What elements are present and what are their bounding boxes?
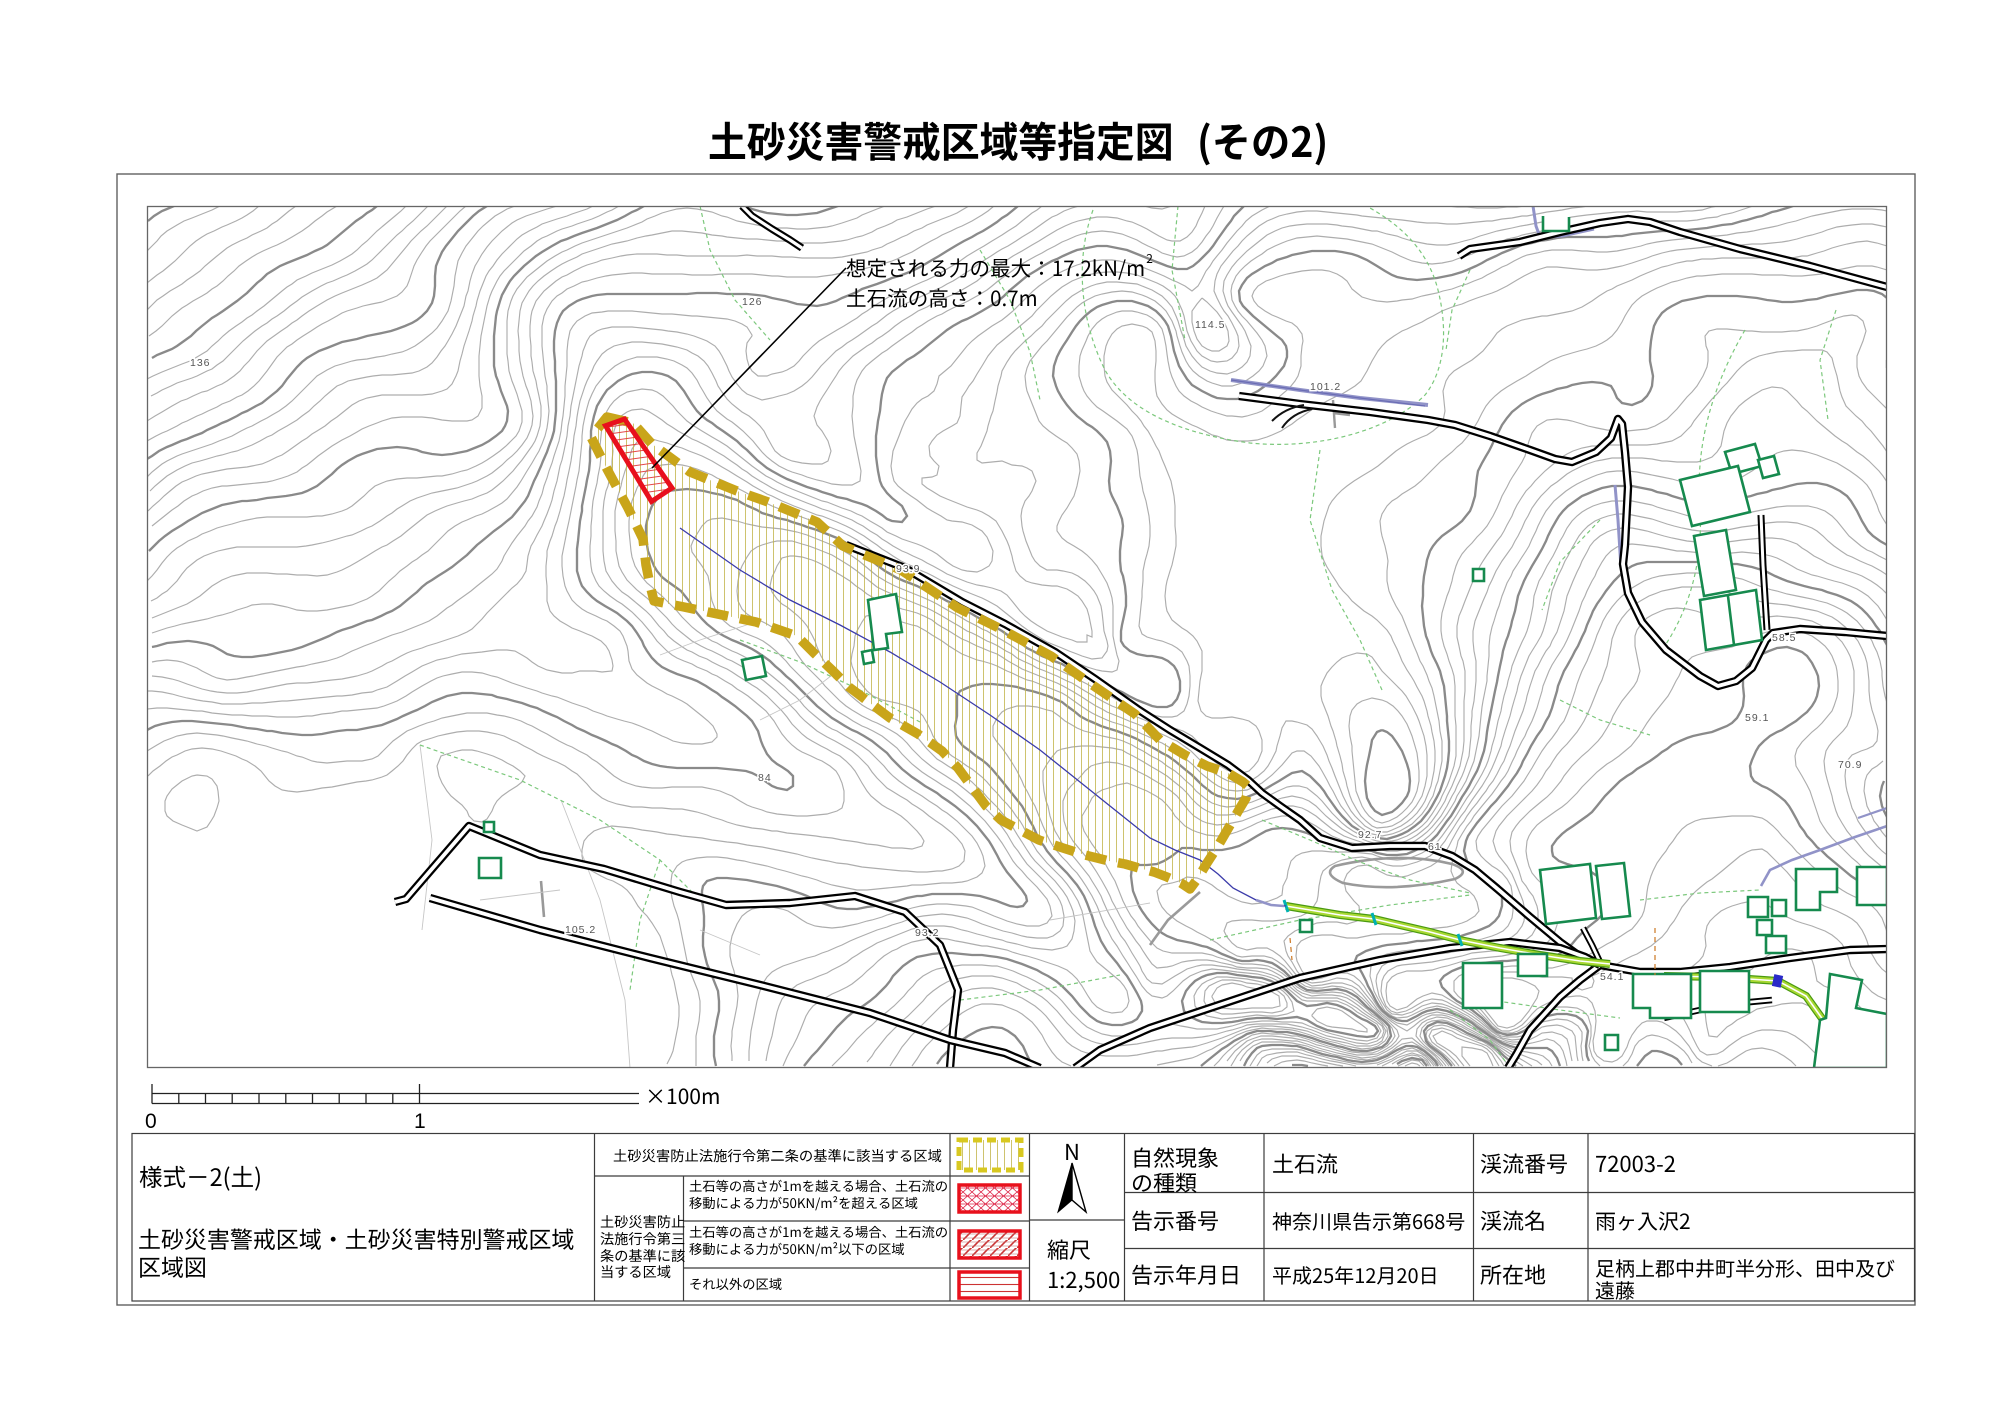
svg-text:61: 61	[1428, 841, 1442, 853]
svg-text:84: 84	[758, 772, 772, 784]
svg-text:92.7: 92.7	[1358, 829, 1382, 841]
svg-text:59.1: 59.1	[1745, 712, 1769, 724]
svg-text:70.9: 70.9	[1838, 759, 1862, 771]
svg-text:101.2: 101.2	[1310, 381, 1341, 393]
svg-text:126: 126	[742, 296, 763, 308]
svg-text:93.2: 93.2	[915, 927, 939, 939]
svg-text:136: 136	[190, 357, 211, 369]
svg-text:105.2: 105.2	[565, 924, 596, 936]
svg-text:0: 0	[145, 1110, 157, 1133]
svg-text:93.9: 93.9	[896, 563, 920, 575]
svg-text:58.5: 58.5	[1772, 632, 1796, 644]
svg-text:54.1: 54.1	[1600, 971, 1624, 983]
svg-text:1: 1	[414, 1110, 426, 1133]
svg-text:114.5: 114.5	[1195, 319, 1226, 331]
